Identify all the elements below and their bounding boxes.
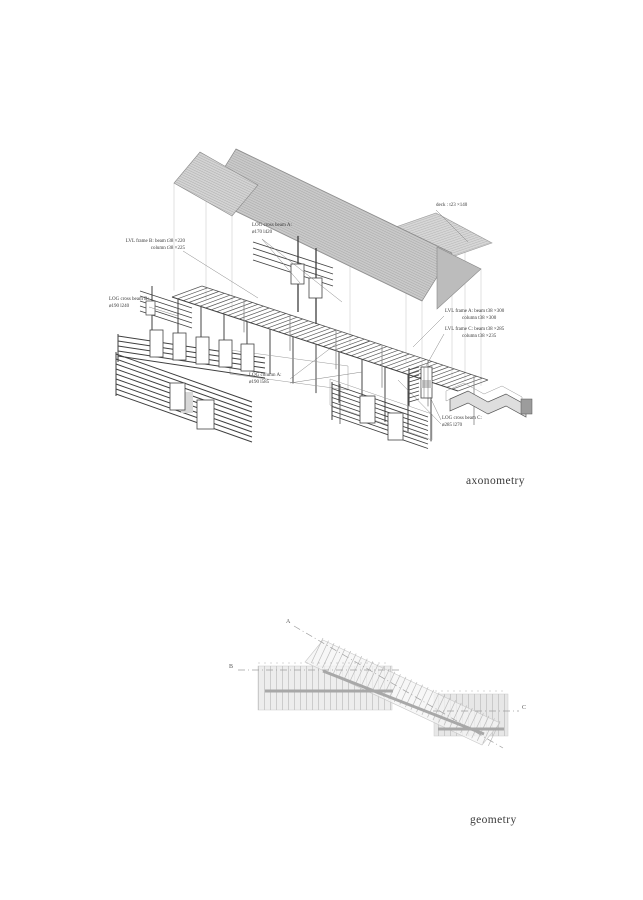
label-log-cross-beam-a: LOG cross beam A: ø170 l420: [252, 223, 292, 237]
louver-slat: [332, 411, 428, 444]
hatch-tick: [313, 663, 314, 664]
hatch-tick: [502, 691, 503, 692]
louver-panel: [388, 413, 403, 440]
hatch-tick: [442, 691, 443, 692]
hatch-tick: [454, 691, 455, 692]
label-lvl-frame-b: LVL frame B: beam t38 ×220 column t38 ×2…: [101, 239, 185, 253]
label-line: LVL frame C: beam t38 ×285: [445, 327, 504, 334]
frame-rung: [409, 399, 419, 402]
louver-slat: [332, 402, 428, 435]
hatch-tick: [349, 663, 350, 664]
axis-label-a: A: [286, 619, 290, 625]
louver-slat: [332, 393, 428, 426]
bench-end-face: [521, 399, 532, 414]
hatch-tick: [271, 663, 272, 664]
louver-panel: [241, 344, 254, 371]
label-line: LVL frame A: beam t38 ×300: [445, 309, 504, 316]
label-line: LOG cross beam A:: [252, 223, 292, 230]
hatch-tick: [283, 663, 284, 664]
hatch-tick: [355, 663, 356, 664]
hatch-tick: [361, 663, 362, 664]
hatch-tick: [307, 663, 308, 664]
hatch-tick: [496, 691, 497, 692]
louver-slat: [332, 398, 428, 431]
geometry-diagram: [238, 626, 519, 748]
architectural-drawing: [0, 0, 643, 900]
hatch-tick: [301, 663, 302, 664]
hatch-tick: [259, 663, 260, 664]
louver-panel: [170, 383, 185, 410]
hatch-tick: [490, 691, 491, 692]
deck-front-rail: [172, 297, 458, 391]
hatch-tick: [484, 691, 485, 692]
louver-panel: [219, 340, 232, 367]
label-log-cross-beam-b: LOG cross beam B: ø190 l240: [109, 297, 149, 311]
label-line: column t38 ×225: [101, 246, 185, 253]
hatch-tick: [289, 663, 290, 664]
hatch-tick: [343, 663, 344, 664]
label-lvl-frame-a: LVL frame A: beam t38 ×300 column t38 ×3…: [445, 309, 504, 323]
hatch-tick: [295, 663, 296, 664]
label-line: column t38 ×300: [445, 316, 504, 323]
bench-steps: [446, 383, 532, 417]
leader-line: [430, 397, 441, 420]
hatch-tick: [472, 691, 473, 692]
louver-panel: [360, 396, 375, 423]
caption-axonometry: axonometry: [466, 475, 525, 487]
label-line: LVL frame B: beam t38 ×220: [101, 239, 185, 246]
label-log-cross-beam-c: LOG cross beam C: ø285 l270: [442, 416, 482, 430]
hatch-tick: [373, 663, 374, 664]
frame-rung: [409, 383, 419, 386]
label-deck: deck : t23 ×140: [436, 203, 467, 210]
caption-geometry: geometry: [470, 814, 517, 826]
hatch-tick: [385, 663, 386, 664]
frame-rung: [409, 379, 419, 382]
hatch-tick: [448, 691, 449, 692]
frame-rung: [409, 367, 419, 370]
hatch-tick: [319, 663, 320, 664]
label-line: ø190 l240: [109, 304, 149, 311]
louver-slat: [332, 407, 428, 440]
leader-line: [398, 380, 441, 424]
hatch-tick: [325, 663, 326, 664]
label-line: LOG cross beam B:: [109, 297, 149, 304]
louver-panel: [173, 333, 186, 360]
label-line: column t38 ×235: [445, 334, 504, 341]
label-line: ø170 l420: [252, 230, 292, 237]
louver-panel: [150, 330, 163, 357]
hatch-tick: [460, 691, 461, 692]
louver-panel: [196, 337, 209, 364]
hatch-tick: [436, 691, 437, 692]
frame-rung: [409, 387, 419, 390]
leader-line: [426, 334, 444, 366]
axis-label-c: C: [522, 705, 526, 711]
frame-panel-shade: [421, 380, 432, 388]
hatch-tick: [478, 691, 479, 692]
frame-rung: [409, 371, 419, 374]
hatch-tick: [367, 663, 368, 664]
roof-gable-end: [437, 247, 481, 309]
leader-line: [290, 344, 336, 379]
bench-steps: [450, 391, 526, 417]
hatch-tick: [466, 691, 467, 692]
louver-panel: [197, 400, 214, 429]
hatch-tick: [379, 663, 380, 664]
label-line: deck : t23 ×140: [436, 203, 467, 210]
label-lvl-frame-c: LVL frame C: beam t38 ×285 column t38 ×2…: [445, 327, 504, 341]
hatch-tick: [331, 663, 332, 664]
label-log-column-a: LOG column A: ø190 l585: [249, 373, 282, 387]
hatch-tick: [337, 663, 338, 664]
roof-deck-panels: [174, 149, 492, 309]
hatch-tick: [265, 663, 266, 664]
label-line: ø285 l270: [442, 423, 482, 430]
leader-line: [183, 251, 258, 298]
louver-slat: [332, 389, 428, 422]
label-line: LOG column A:: [249, 373, 282, 380]
louver-slat: [332, 416, 428, 449]
label-line: LOG cross beam C:: [442, 416, 482, 423]
leader-line: [290, 372, 362, 383]
label-line: ø190 l585: [249, 380, 282, 387]
hatch-tick: [277, 663, 278, 664]
axis-label-b: B: [229, 664, 233, 670]
drawing-sheet: LVL frame B: beam t38 ×220 column t38 ×2…: [0, 0, 643, 900]
